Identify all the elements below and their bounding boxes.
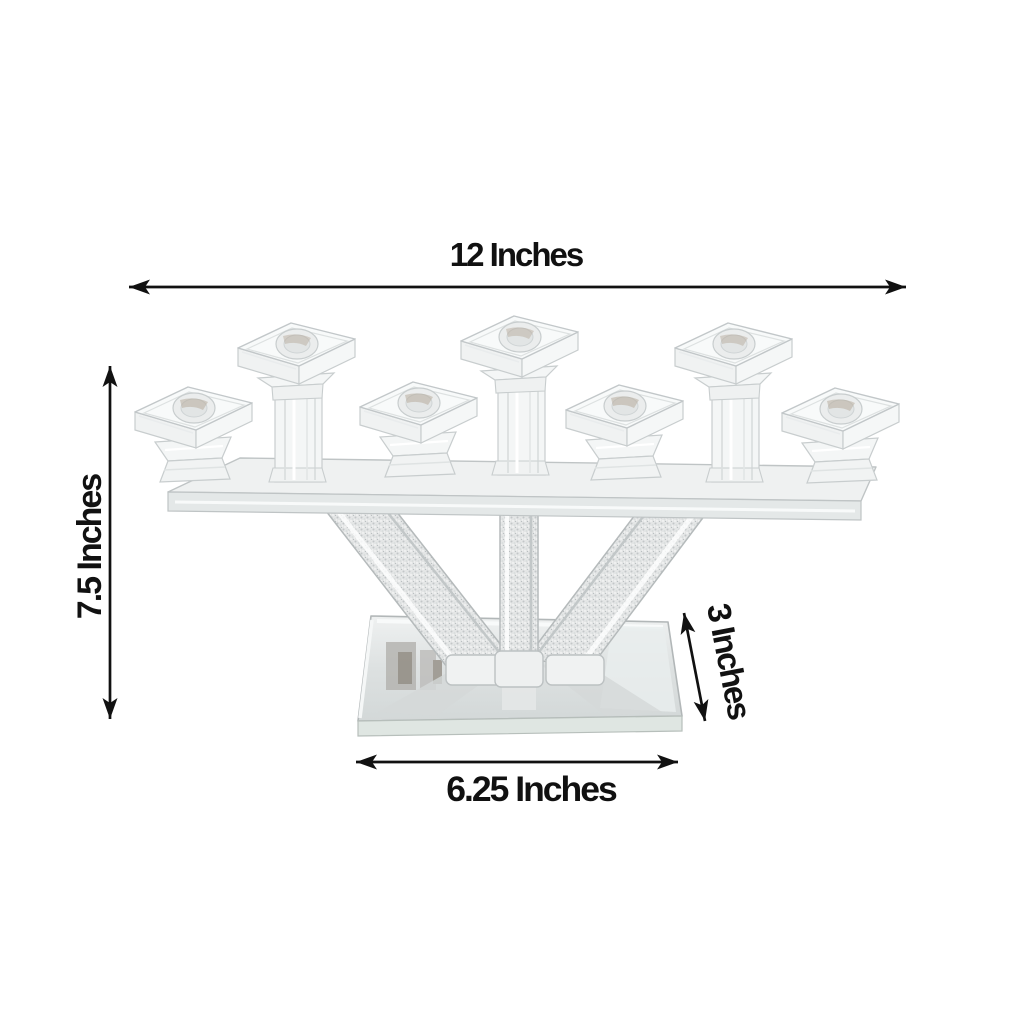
svg-text:12 Inches: 12 Inches [450, 236, 583, 273]
svg-text:7.5 Inches: 7.5 Inches [71, 474, 109, 620]
svg-text:6.25 Inches: 6.25 Inches [446, 769, 617, 809]
